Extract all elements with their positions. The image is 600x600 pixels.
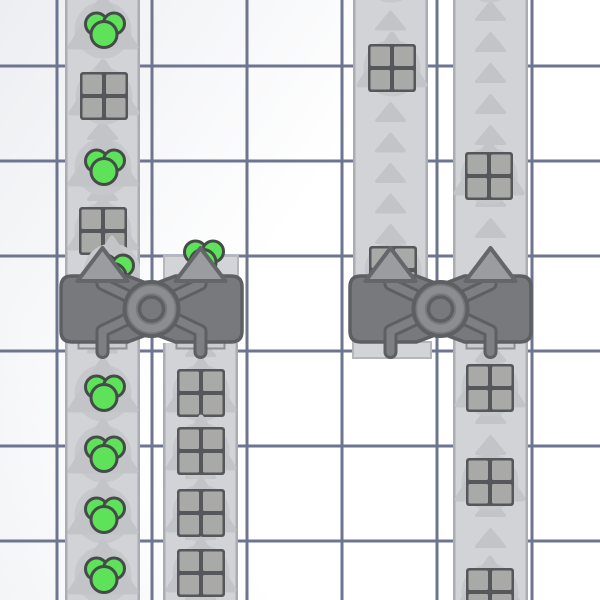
square-item-cell: [180, 552, 200, 572]
green-circle: [91, 22, 117, 48]
square-item-cell: [492, 390, 512, 410]
machine-center-ring-core: [429, 297, 453, 321]
square-item-cell: [180, 372, 200, 392]
square-item-cell: [371, 47, 391, 67]
square-item-cell: [394, 70, 414, 90]
square-item-cell: [180, 515, 200, 535]
green-circle: [91, 159, 117, 185]
square-item-cell: [468, 178, 488, 198]
game-viewport: [0, 0, 600, 600]
square-item-cell: [106, 75, 126, 95]
green-circle: [91, 507, 117, 533]
square-item-cell: [492, 461, 512, 481]
square-item-cell: [469, 367, 489, 387]
square-item-cell: [180, 395, 200, 415]
square-item-cell: [491, 155, 511, 175]
square-item-cell: [203, 552, 223, 572]
green-circle: [91, 385, 117, 411]
square-item-cell: [203, 575, 223, 595]
square-item-cell: [491, 178, 511, 198]
belt-edge: [236, 343, 239, 600]
square-item-cell: [83, 98, 103, 118]
square-item-cell: [203, 515, 223, 535]
square-item-cell: [180, 492, 200, 512]
belt-edge: [353, 0, 356, 278]
belt-edge: [426, 0, 429, 278]
square-item-cell: [394, 47, 414, 67]
square-item-cell: [469, 571, 489, 591]
square-item-cell: [180, 453, 200, 473]
square-item-cell: [469, 484, 489, 504]
square-item-cell: [468, 155, 488, 175]
square-item-cell: [105, 210, 125, 230]
square-item-cell: [82, 210, 102, 230]
square-item-cell: [492, 594, 512, 600]
green-circle: [91, 446, 117, 472]
square-item-cell: [469, 390, 489, 410]
square-item-cell: [492, 484, 512, 504]
square-item-cell: [469, 594, 489, 600]
square-item-cell: [180, 430, 200, 450]
machine-center-ring-core: [140, 297, 164, 321]
square-item-cell: [469, 461, 489, 481]
green-circle: [91, 567, 117, 593]
square-item-cell: [492, 571, 512, 591]
square-item-cell: [83, 75, 103, 95]
square-item-cell: [492, 367, 512, 387]
square-item-cell: [203, 453, 223, 473]
square-item-cell: [106, 98, 126, 118]
belt-edge: [163, 343, 166, 600]
square-item-cell: [180, 575, 200, 595]
square-item-cell: [371, 70, 391, 90]
square-item-cell: [203, 372, 223, 392]
square-item-cell: [203, 395, 223, 415]
square-item-cell: [203, 430, 223, 450]
factory-scene: [0, 0, 600, 600]
square-item-cell: [203, 492, 223, 512]
